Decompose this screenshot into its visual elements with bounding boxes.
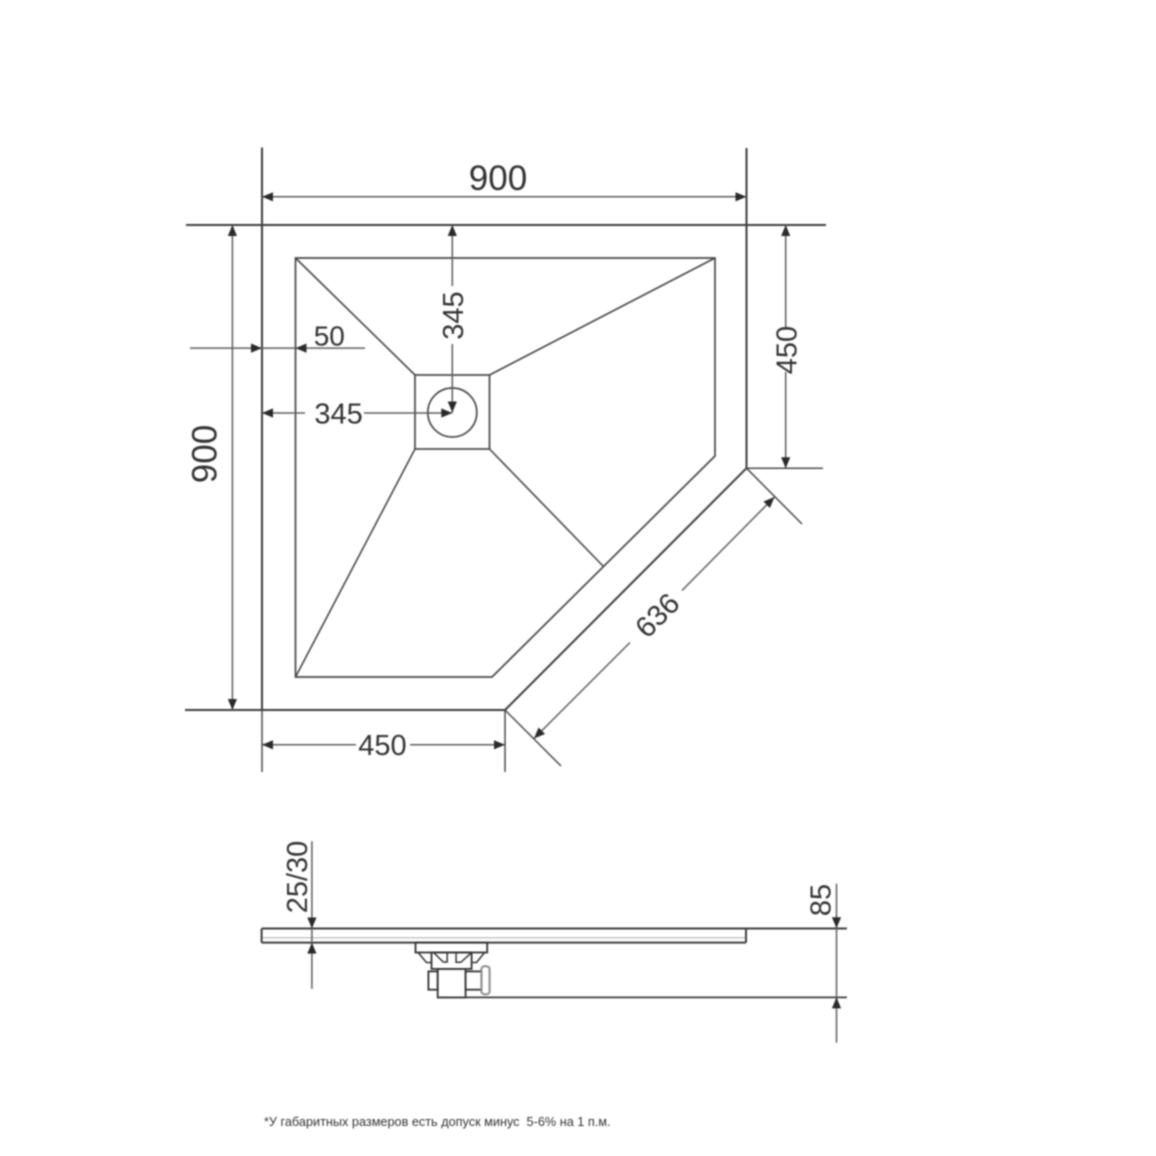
svg-text:25/30: 25/30 bbox=[282, 841, 314, 914]
svg-text:345: 345 bbox=[314, 398, 362, 430]
svg-text:636: 636 bbox=[630, 588, 687, 645]
svg-text:450: 450 bbox=[771, 326, 803, 374]
svg-text:900: 900 bbox=[186, 425, 225, 483]
svg-text:*У габаритных размеров есть до: *У габаритных размеров есть допуск минус… bbox=[264, 1115, 611, 1129]
svg-text:85: 85 bbox=[805, 884, 837, 916]
svg-text:345: 345 bbox=[438, 291, 470, 339]
svg-text:450: 450 bbox=[358, 730, 406, 762]
svg-text:900: 900 bbox=[469, 159, 527, 198]
svg-text:50: 50 bbox=[314, 320, 345, 351]
